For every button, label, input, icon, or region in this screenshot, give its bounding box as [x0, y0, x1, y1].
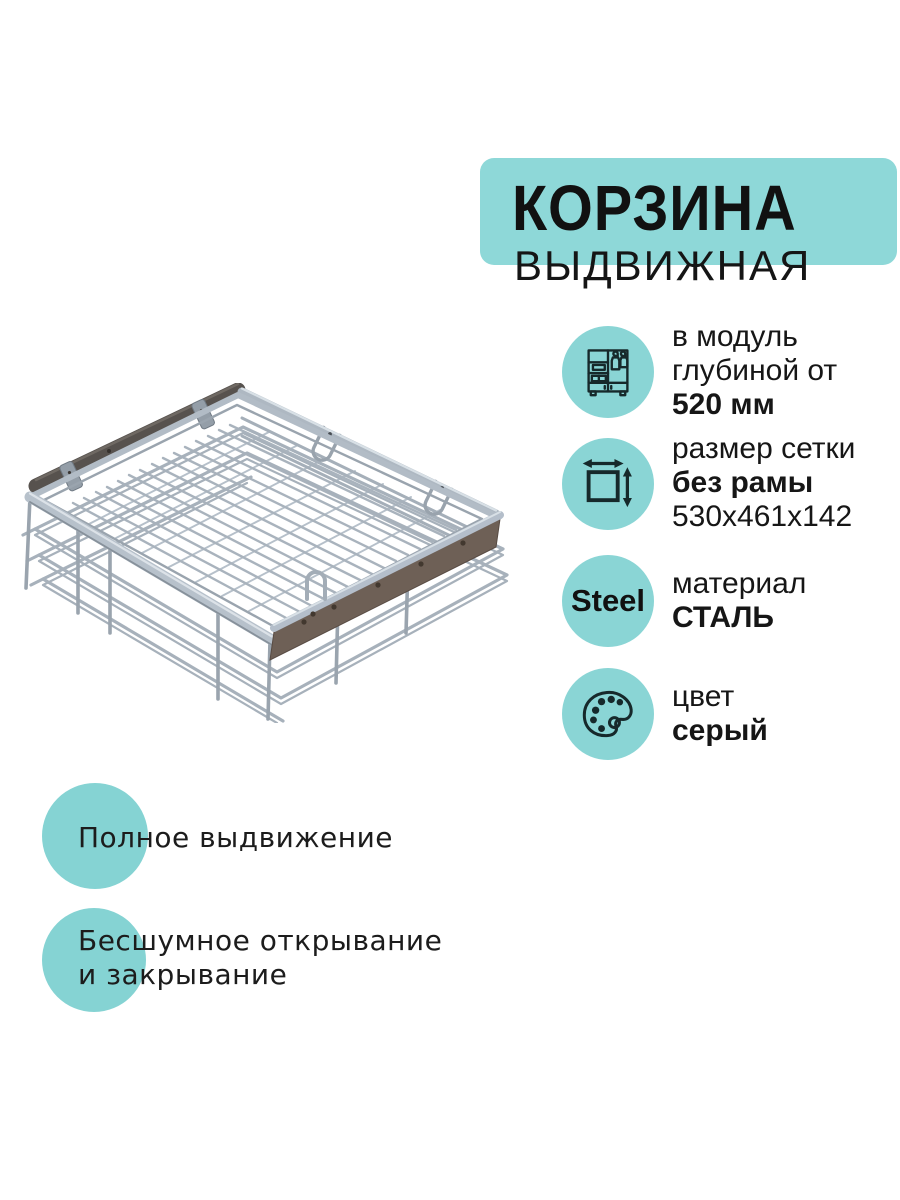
spec-module-circle — [562, 326, 654, 418]
wardrobe-icon — [580, 344, 636, 400]
feature-quiet-line1: Бесшумное открывание — [78, 924, 442, 958]
spec-color-line1: цвет — [672, 680, 768, 714]
spec-module-line2: глубиной от — [672, 354, 837, 388]
spec-color-text: цвет серый — [672, 680, 768, 748]
spec-module-text: в модуль глубиной от 520 мм — [672, 320, 837, 422]
spec-material-text: материал СТАЛЬ — [672, 567, 806, 635]
spec-color-circle — [562, 668, 654, 760]
product-title: КОРЗИНА — [512, 176, 797, 240]
dimensions-icon — [580, 456, 636, 512]
feature-full-extension: Полное выдвижение — [78, 821, 393, 855]
product-card: КОРЗИНА ВЫДВИЖНАЯ — [0, 0, 900, 1200]
palette-icon — [580, 686, 636, 742]
spec-module-line3: 520 мм — [672, 388, 837, 422]
product-subtitle: ВЫДВИЖНАЯ — [514, 245, 811, 287]
feature-quiet: Бесшумное открывание и закрывание — [78, 924, 442, 992]
spec-size-line1: размер сетки — [672, 432, 855, 466]
spec-size-line2: без рамы — [672, 466, 855, 500]
steel-label: Steel — [571, 583, 645, 619]
spec-size-text: размер сетки без рамы 530х461х142 — [672, 432, 855, 534]
spec-color-line2: серый — [672, 714, 768, 748]
spec-size-circle — [562, 438, 654, 530]
product-image — [8, 383, 560, 723]
spec-module-line1: в модуль — [672, 320, 837, 354]
feature-quiet-line2: и закрывание — [78, 958, 442, 992]
spec-size-line3: 530х461х142 — [672, 500, 855, 534]
spec-material-line2: СТАЛЬ — [672, 601, 806, 635]
spec-material-line1: материал — [672, 567, 806, 601]
basket-front-panel — [270, 512, 500, 660]
spec-material-circle: Steel — [562, 555, 654, 647]
